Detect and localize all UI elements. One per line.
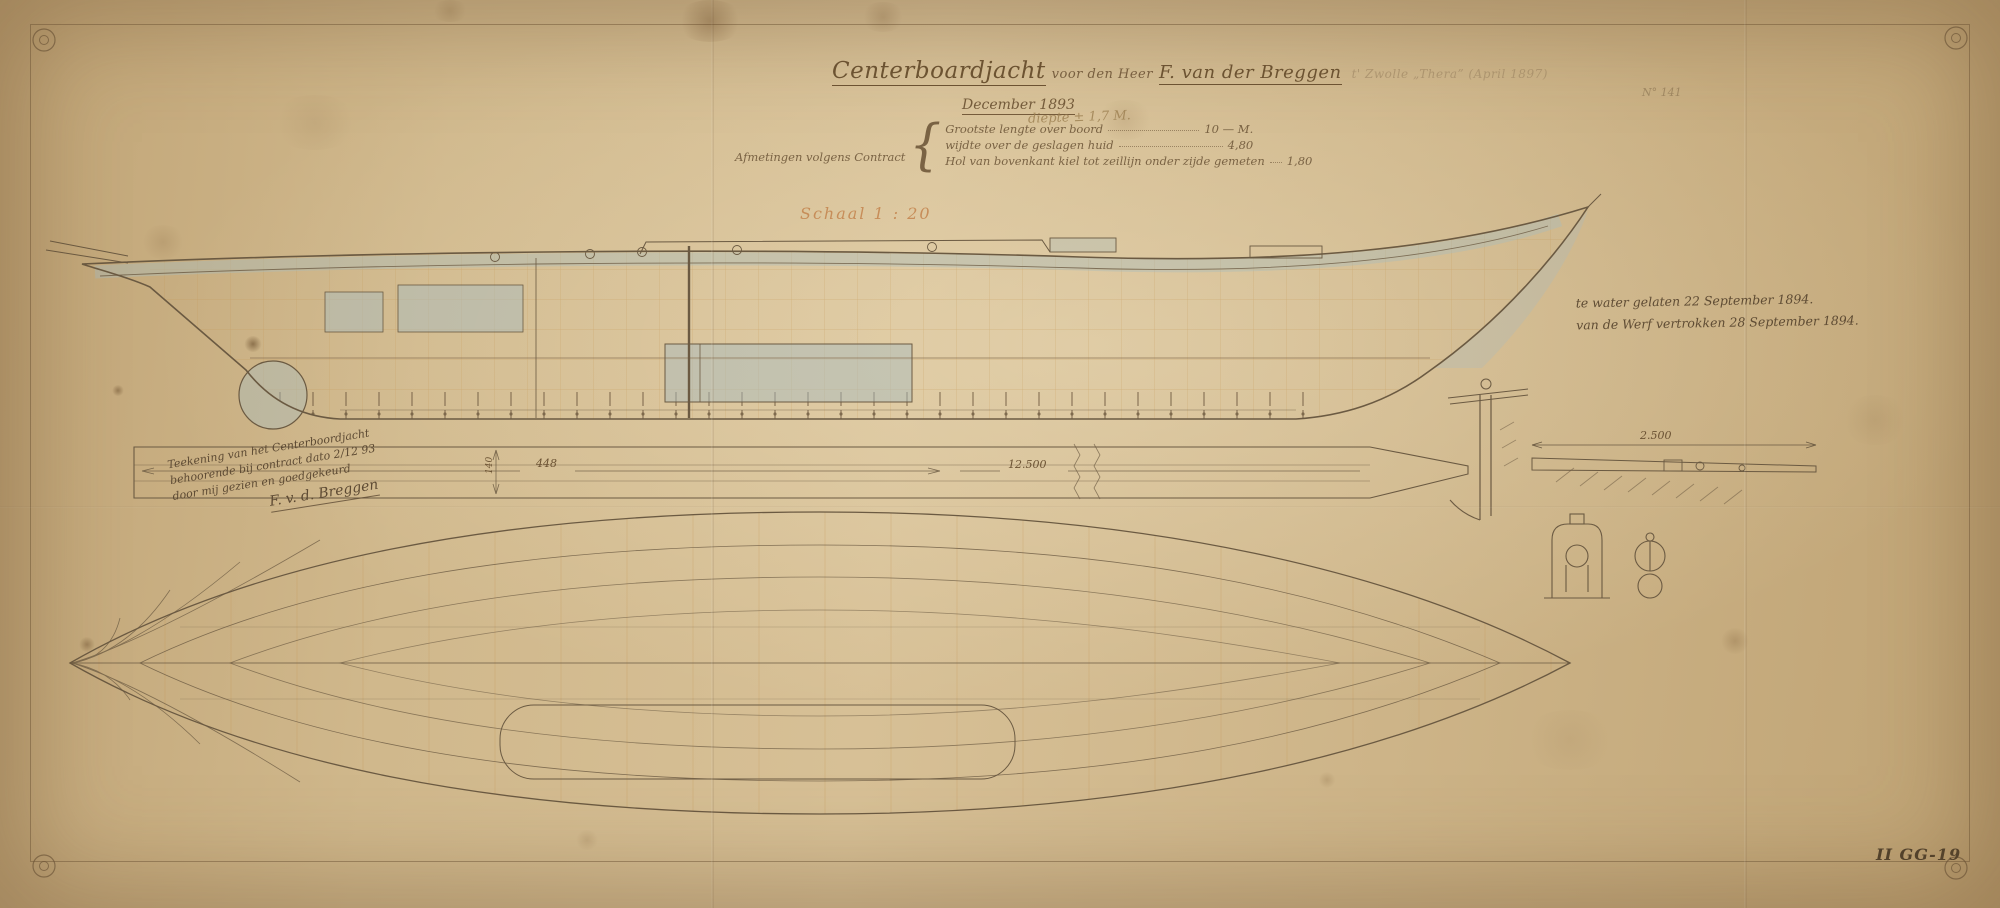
dimension-value: 10 — M. (1204, 121, 1253, 137)
dimension-label: Grootste lengte over boord (945, 121, 1103, 137)
dotted-leader (1270, 162, 1282, 163)
archive-mark: II GG-19 (1876, 845, 1961, 864)
dimensions-caption: Afmetingen volgens Contract (735, 150, 905, 170)
fold-crease (711, 0, 714, 908)
title-annotation: t' Zwolle „Thera” (April 1897) (1352, 67, 1548, 81)
sheet-number: N° 141 (1642, 86, 1682, 99)
dotted-leader (1119, 146, 1223, 147)
dotted-leader (1108, 130, 1199, 131)
title-block: Centerboardjachtvoor den HeerF. van der … (832, 58, 1548, 84)
dimension-label: Hol van bovenkant kiel tot zeillijn onde… (945, 153, 1265, 169)
fold-crease (1744, 0, 1747, 908)
dimension-row: Hol van bovenkant kiel tot zeillijn onde… (945, 153, 1253, 169)
dimensions-block: Afmetingen volgens Contract { Grootste l… (735, 120, 1253, 170)
brace-glyph: { (909, 118, 941, 173)
dimensions-rows: Grootste lengte over boord10 — M. wijdte… (945, 121, 1253, 169)
launch-note: te water gelaten 22 September 1894. van … (1576, 288, 1859, 337)
scale-note: Schaal 1 : 20 (800, 204, 932, 223)
dimension-value: 4,80 (1228, 137, 1254, 153)
title-connector: voor den Heer (1052, 67, 1153, 82)
dimension-row: Grootste lengte over boord10 — M. (945, 121, 1253, 137)
dimension-label: wijdte over de geslagen huid (945, 137, 1113, 153)
dimension-value: 1,80 (1287, 153, 1313, 169)
drawing-sheet: 448 140 12.500 2.500 Centerboardjachtvoo… (0, 0, 2000, 908)
drawing-title: Centerboardjacht (832, 58, 1046, 86)
client-name: F. van der Breggen (1159, 62, 1342, 85)
dimension-row: wijdte over de geslagen huid4,80 (945, 137, 1253, 153)
